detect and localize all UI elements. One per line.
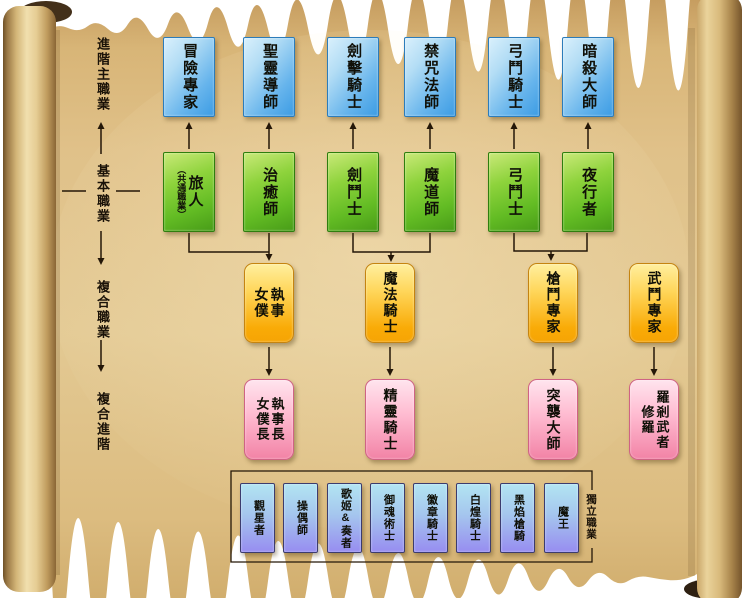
job-node-martial-fight-expert: 武鬥專家: [629, 263, 679, 343]
job-label: 劍鬥士: [345, 167, 361, 218]
job-label: 聖靈導師: [261, 43, 277, 111]
job-label: 夜行者: [580, 167, 596, 218]
job-node-rakshasa-warrior: 羅剎武者 修羅: [629, 379, 679, 460]
job-node-emblem-knight: 徽章騎士: [413, 483, 448, 553]
axis-label-compound-advanced: 複合進階: [93, 392, 112, 452]
job-label: 執事: [270, 287, 285, 319]
job-node-magic-knight: 魔法騎士: [365, 263, 415, 343]
axis-label-compound: 複合職業: [93, 280, 112, 340]
axis-label-advanced-main: 進階主職業: [93, 37, 112, 112]
job-node-traveler: 旅人 （共通職業）: [163, 152, 215, 232]
job-label: 冒險專家: [181, 43, 197, 111]
job-node-demon-king: 魔王: [544, 483, 579, 553]
job-node-head-maid-butler: 執事長 女僕長: [244, 379, 294, 460]
job-node-adventure-expert: 冒險專家: [163, 37, 215, 117]
job-label: 武鬥專家: [646, 271, 661, 335]
independent-jobs-label: 獨立職業: [584, 494, 599, 540]
job-node-gun-fight-expert: 槍鬥專家: [528, 263, 578, 343]
job-label: 突襲大師: [545, 388, 560, 452]
job-label: 槍鬥專家: [545, 271, 560, 335]
job-node-soul-arts-master: 御魂術士: [370, 483, 405, 553]
job-label: 魔王: [556, 506, 568, 530]
job-label: 弓鬥騎士: [506, 43, 522, 111]
job-node-spirit-knight: 精靈騎士: [365, 379, 415, 460]
job-label: 旅人: [186, 175, 202, 209]
job-note: （共通職業）: [176, 165, 186, 219]
job-label: 魔道師: [422, 167, 438, 218]
job-label: 操偶師: [295, 500, 307, 536]
job-node-bow-fighter: 弓鬥士: [488, 152, 540, 232]
job-node-stargazer: 觀星者: [240, 483, 275, 553]
job-label: 劍擊騎士: [345, 43, 361, 111]
job-label: 弓鬥士: [506, 167, 522, 218]
job-node-bow-fight-knight: 弓鬥騎士: [488, 37, 540, 117]
job-label: 禁咒法師: [422, 43, 438, 111]
job-label: 黑焰槍騎: [512, 494, 524, 542]
job-label-alt: 修羅: [639, 405, 653, 435]
job-label: 魔法騎士: [382, 271, 397, 335]
job-node-holy-spirit-mentor: 聖靈導師: [243, 37, 295, 117]
job-label: 歌姬&奏者: [339, 488, 351, 549]
job-node-forbidden-spell-mage: 禁咒法師: [404, 37, 456, 117]
job-node-magician: 魔道師: [404, 152, 456, 232]
job-node-maid-butler: 執事 女僕: [244, 263, 294, 343]
job-label-alt: 女僕: [253, 287, 268, 319]
job-label: 執事長: [270, 397, 284, 442]
job-node-white-blaze-knight: 白煌騎士: [456, 483, 491, 553]
job-node-songstress-performer: 歌姬&奏者: [327, 483, 362, 553]
job-node-raid-master: 突襲大師: [528, 379, 578, 460]
job-node-assassin-master: 暗殺大師: [562, 37, 614, 117]
job-label: 羅剎武者: [655, 390, 669, 450]
job-node-black-flame-lancer: 黑焰槍騎: [500, 483, 535, 553]
job-label: 觀星者: [252, 500, 264, 536]
job-label: 白煌騎士: [468, 494, 480, 542]
job-label: 徽章騎士: [425, 494, 437, 542]
job-label: 暗殺大師: [580, 43, 596, 111]
class-tree-diagram: 進階主職業 基本職業 複合職業 複合進階 冒險專家 聖靈導師 劍擊騎士 禁咒法師…: [0, 0, 743, 598]
job-node-night-walker: 夜行者: [562, 152, 614, 232]
job-node-sword-fighter: 劍鬥士: [327, 152, 379, 232]
job-label: 御魂術士: [382, 494, 394, 542]
axis-label-basic: 基本職業: [93, 164, 112, 224]
job-label: 精靈騎士: [382, 388, 397, 452]
job-label: 治癒師: [261, 167, 277, 218]
job-node-healer: 治癒師: [243, 152, 295, 232]
job-node-puppeteer: 操偶師: [283, 483, 318, 553]
job-node-sword-strike-knight: 劍擊騎士: [327, 37, 379, 117]
job-label-alt: 女僕長: [254, 397, 268, 442]
